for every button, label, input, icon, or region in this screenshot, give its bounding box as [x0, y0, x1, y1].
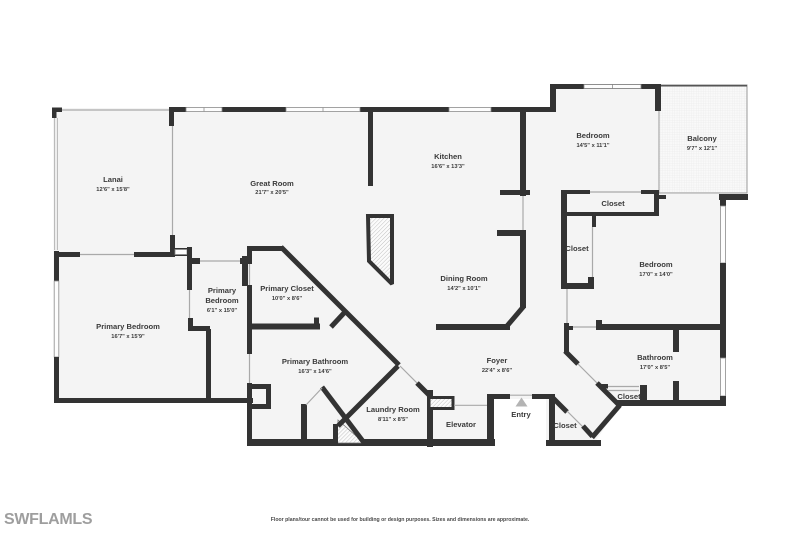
svg-text:Entry: Entry — [511, 410, 531, 419]
svg-text:Closet: Closet — [565, 244, 589, 253]
svg-text:Closet: Closet — [617, 392, 641, 401]
svg-text:Primary: Primary — [208, 286, 237, 295]
svg-text:SWFLAMLS: SWFLAMLS — [4, 511, 93, 528]
svg-text:Laundry Room: Laundry Room — [366, 405, 420, 414]
svg-text:16'7" x 15'9": 16'7" x 15'9" — [111, 334, 145, 340]
svg-text:Bedroom: Bedroom — [639, 260, 673, 269]
svg-text:Lanai: Lanai — [103, 175, 123, 184]
svg-text:Great Room: Great Room — [250, 179, 294, 188]
svg-text:21'7" x 20'5": 21'7" x 20'5" — [255, 190, 289, 196]
svg-text:Dining Room: Dining Room — [440, 274, 487, 283]
svg-text:16'6" x 13'3": 16'6" x 13'3" — [431, 164, 465, 170]
svg-text:Bedroom: Bedroom — [205, 296, 239, 305]
svg-text:Primary Bedroom: Primary Bedroom — [96, 322, 160, 331]
svg-text:Floor plans/tour cannot be use: Floor plans/tour cannot be used for buil… — [271, 517, 530, 523]
svg-text:Closet: Closet — [601, 199, 625, 208]
svg-text:Closet: Closet — [553, 421, 577, 430]
svg-text:14'2" x 10'1": 14'2" x 10'1" — [447, 286, 481, 292]
svg-text:Primary Closet: Primary Closet — [260, 284, 314, 293]
svg-text:Kitchen: Kitchen — [434, 152, 462, 161]
svg-text:Foyer: Foyer — [487, 356, 508, 365]
svg-text:16'3" x 14'6": 16'3" x 14'6" — [298, 369, 332, 375]
svg-text:22'4" x 8'6": 22'4" x 8'6" — [482, 368, 513, 374]
svg-text:17'0" x 8'5": 17'0" x 8'5" — [640, 365, 671, 371]
svg-text:17'0" x 14'0": 17'0" x 14'0" — [639, 272, 673, 278]
svg-text:Bedroom: Bedroom — [576, 131, 610, 140]
svg-text:10'0" x 8'6": 10'0" x 8'6" — [272, 296, 303, 302]
svg-text:Balcony: Balcony — [687, 134, 717, 143]
svg-text:Elevator: Elevator — [446, 420, 476, 429]
svg-text:Bathroom: Bathroom — [637, 353, 673, 362]
svg-text:12'6" x 15'8": 12'6" x 15'8" — [96, 187, 130, 193]
svg-text:8'11" x 8'5": 8'11" x 8'5" — [378, 417, 408, 423]
svg-text:14'5" x 11'1": 14'5" x 11'1" — [576, 143, 609, 149]
svg-text:9'7" x 12'1": 9'7" x 12'1" — [687, 146, 718, 152]
svg-text:Primary Bathroom: Primary Bathroom — [282, 357, 349, 366]
svg-text:6'1" x 15'0": 6'1" x 15'0" — [207, 308, 238, 314]
